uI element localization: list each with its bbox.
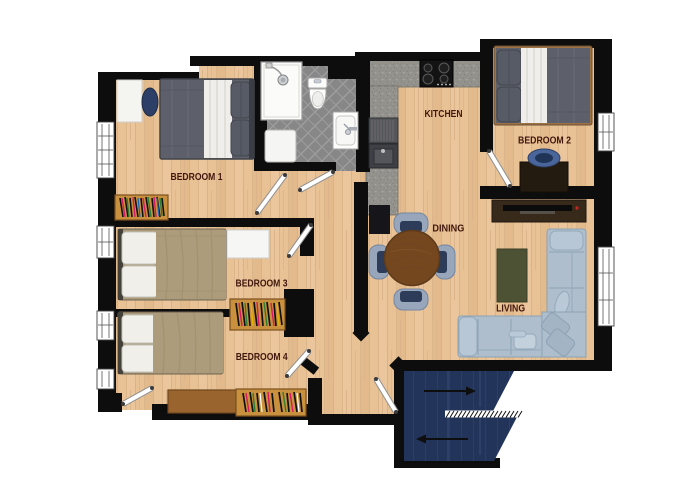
svg-text:DINING: DINING (432, 223, 464, 235)
svg-text:LIVING: LIVING (496, 303, 525, 315)
svg-text:BEDROOM 4: BEDROOM 4 (236, 351, 288, 363)
svg-text:BEDROOM 3: BEDROOM 3 (236, 278, 288, 290)
svg-text:BEDROOM 1: BEDROOM 1 (171, 171, 223, 183)
svg-text:KITCHEN: KITCHEN (425, 108, 463, 120)
svg-text:BEDROOM 2: BEDROOM 2 (518, 135, 571, 147)
